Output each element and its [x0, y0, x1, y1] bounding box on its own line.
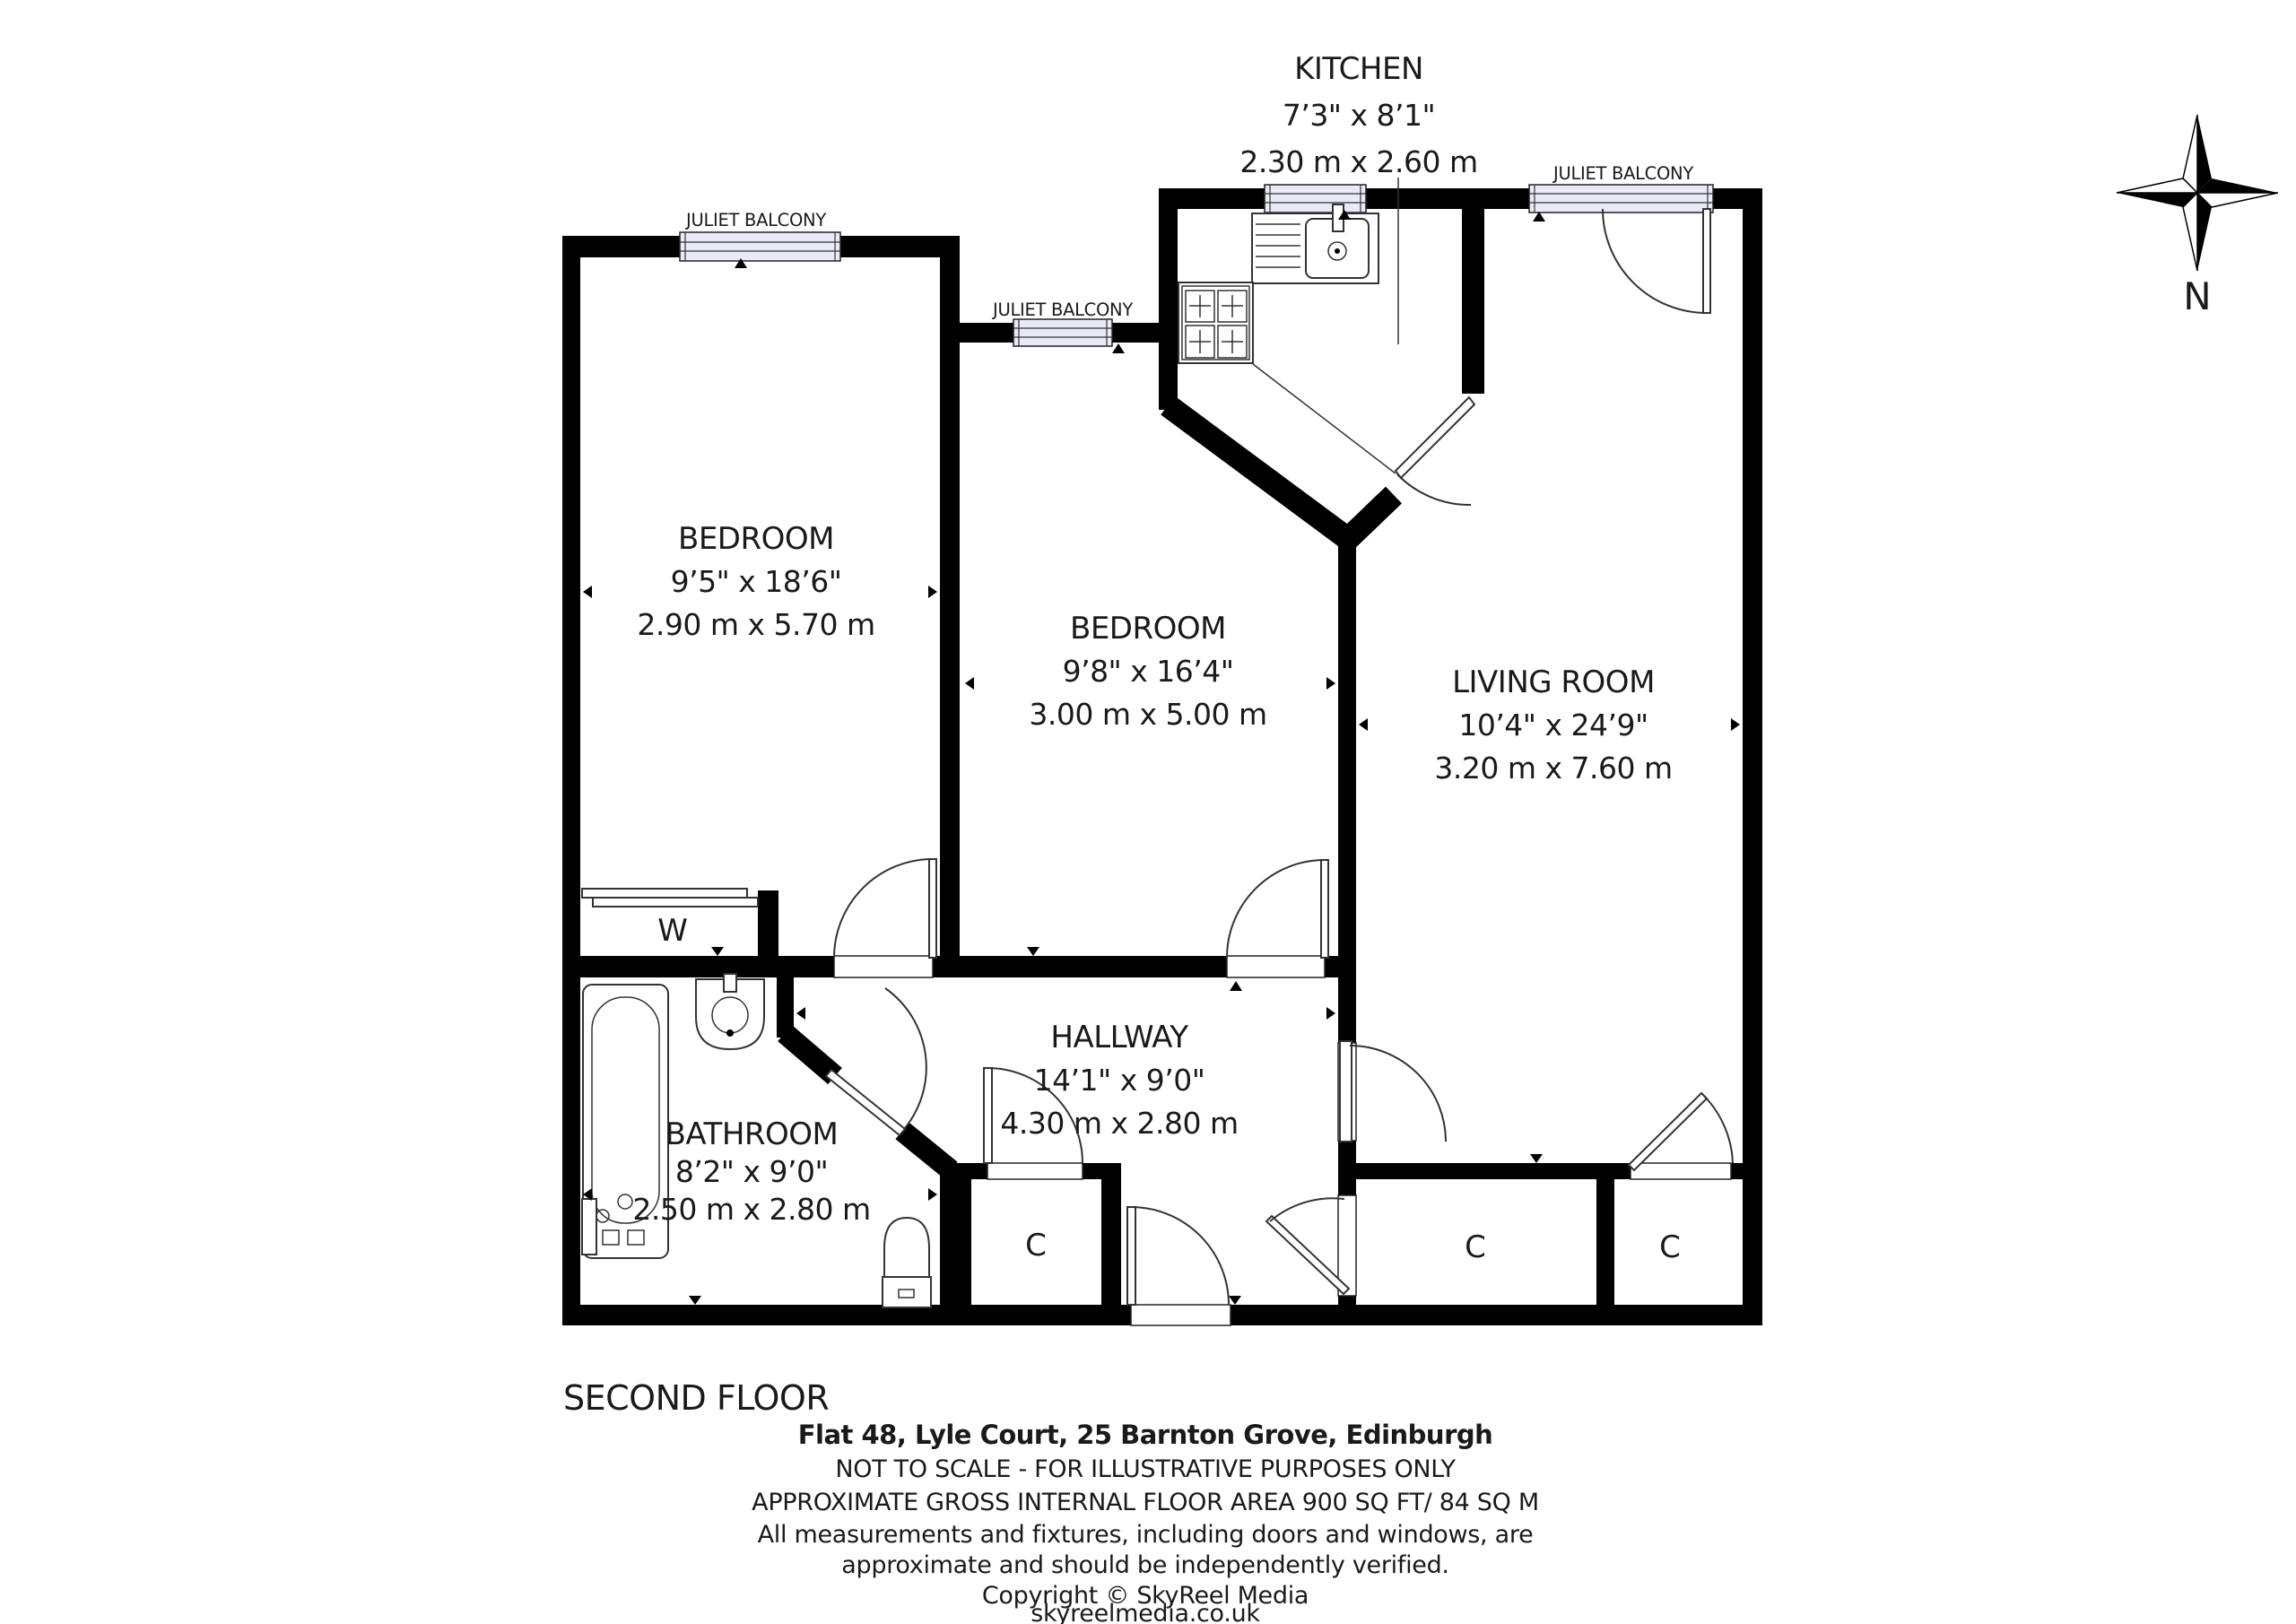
juliet-balcony-label-bedroom-1: JULIET BALCONY [684, 210, 826, 230]
kitchen-counter-edge [1253, 364, 1396, 473]
bathroom-dim-imperial: 8’2" x 9’0" [675, 1154, 828, 1189]
floor-title: SECOND FLOOR [563, 1378, 829, 1418]
bedroom-2-dim-metric: 3.00 m x 5.00 m [1029, 697, 1266, 732]
footer-floor-area: APPROXIMATE GROSS INTERNAL FLOOR AREA 90… [752, 1489, 1539, 1516]
compass-rose: N [2117, 115, 2278, 318]
living-room-dim-imperial: 10’4" x 24’9" [1458, 708, 1648, 743]
footer-address: Flat 48, Lyle Court, 25 Barnton Grove, E… [798, 1420, 1493, 1450]
kitchen-dim-imperial: 7’3" x 8’1" [1283, 98, 1435, 133]
living-room-label: LIVING ROOM [1452, 664, 1655, 700]
hallway-dim-metric: 4.30 m x 2.80 m [1000, 1106, 1238, 1141]
bedroom-2-label: BEDROOM [1070, 611, 1226, 647]
door-bedroom-2 [1227, 860, 1328, 958]
bedroom-1-dim-metric: 2.90 m x 5.70 m [637, 607, 874, 642]
bedroom-2-dim-imperial: 9’8" x 16’4" [1063, 654, 1234, 689]
juliet-window-bedroom-1 [680, 232, 840, 261]
toilet [883, 1218, 931, 1307]
kitchen-dim-metric: 2.30 m x 2.60 m [1239, 144, 1477, 179]
juliet-balcony-label-bedroom-2: JULIET BALCONY [991, 300, 1133, 320]
juliet-window-kitchen [1265, 185, 1366, 213]
hallway-label: HALLWAY [1050, 1020, 1188, 1055]
kitchen-hob [1178, 282, 1253, 363]
living-room-dim-metric: 3.20 m x 7.60 m [1434, 751, 1672, 786]
bathroom-label: BATHROOM [665, 1116, 839, 1152]
bedroom-1-label: BEDROOM [678, 521, 834, 557]
door-entrance [1127, 1207, 1229, 1305]
hallway-dim-imperial: 14’1" x 9’0" [1034, 1063, 1205, 1098]
footer-not-to-scale: NOT TO SCALE - FOR ILLUSTRATIVE PURPOSES… [835, 1455, 1456, 1483]
juliet-window-bedroom-2 [1013, 319, 1112, 346]
cupboard-3-label: C [1659, 1229, 1681, 1265]
door-bathroom [826, 988, 926, 1135]
wardrobe-label: W [657, 913, 688, 949]
footer: Flat 48, Lyle Court, 25 Barnton Grove, E… [752, 1420, 1539, 1624]
footer-disclaimer-line-2: approximate and should be independently … [841, 1551, 1448, 1579]
cupboard-2-label: C [1465, 1229, 1486, 1265]
door-cupboard-2 [1266, 1198, 1349, 1294]
wardrobe-sliding-doors [582, 889, 758, 907]
door-bedroom-1 [834, 859, 936, 958]
basin [696, 974, 764, 1049]
bedroom-1-dim-imperial: 9’5" x 18’6" [671, 564, 842, 599]
door-french-living-room [1603, 209, 1710, 313]
door-cupboard-3 [1629, 1093, 1733, 1170]
cupboard-1-label: C [1025, 1228, 1047, 1264]
kitchen-label: KITCHEN [1294, 51, 1423, 87]
floorplan-canvas: KITCHEN 7’3" x 8’1" 2.30 m x 2.60 m BEDR… [0, 0, 2296, 1624]
footer-disclaimer-line-1: All measurements and fixtures, including… [758, 1521, 1534, 1549]
kitchen-sink [1252, 204, 1378, 283]
compass-north-label: N [2183, 274, 2211, 318]
juliet-window-living-room [1529, 185, 1713, 213]
bathroom-dim-metric: 2.50 m x 2.80 m [632, 1192, 870, 1227]
juliet-balcony-label-living-room: JULIET BALCONY [1552, 163, 1693, 184]
footer-website: skyreelmedia.co.uk [1031, 1600, 1260, 1624]
door-kitchen [1396, 397, 1474, 505]
